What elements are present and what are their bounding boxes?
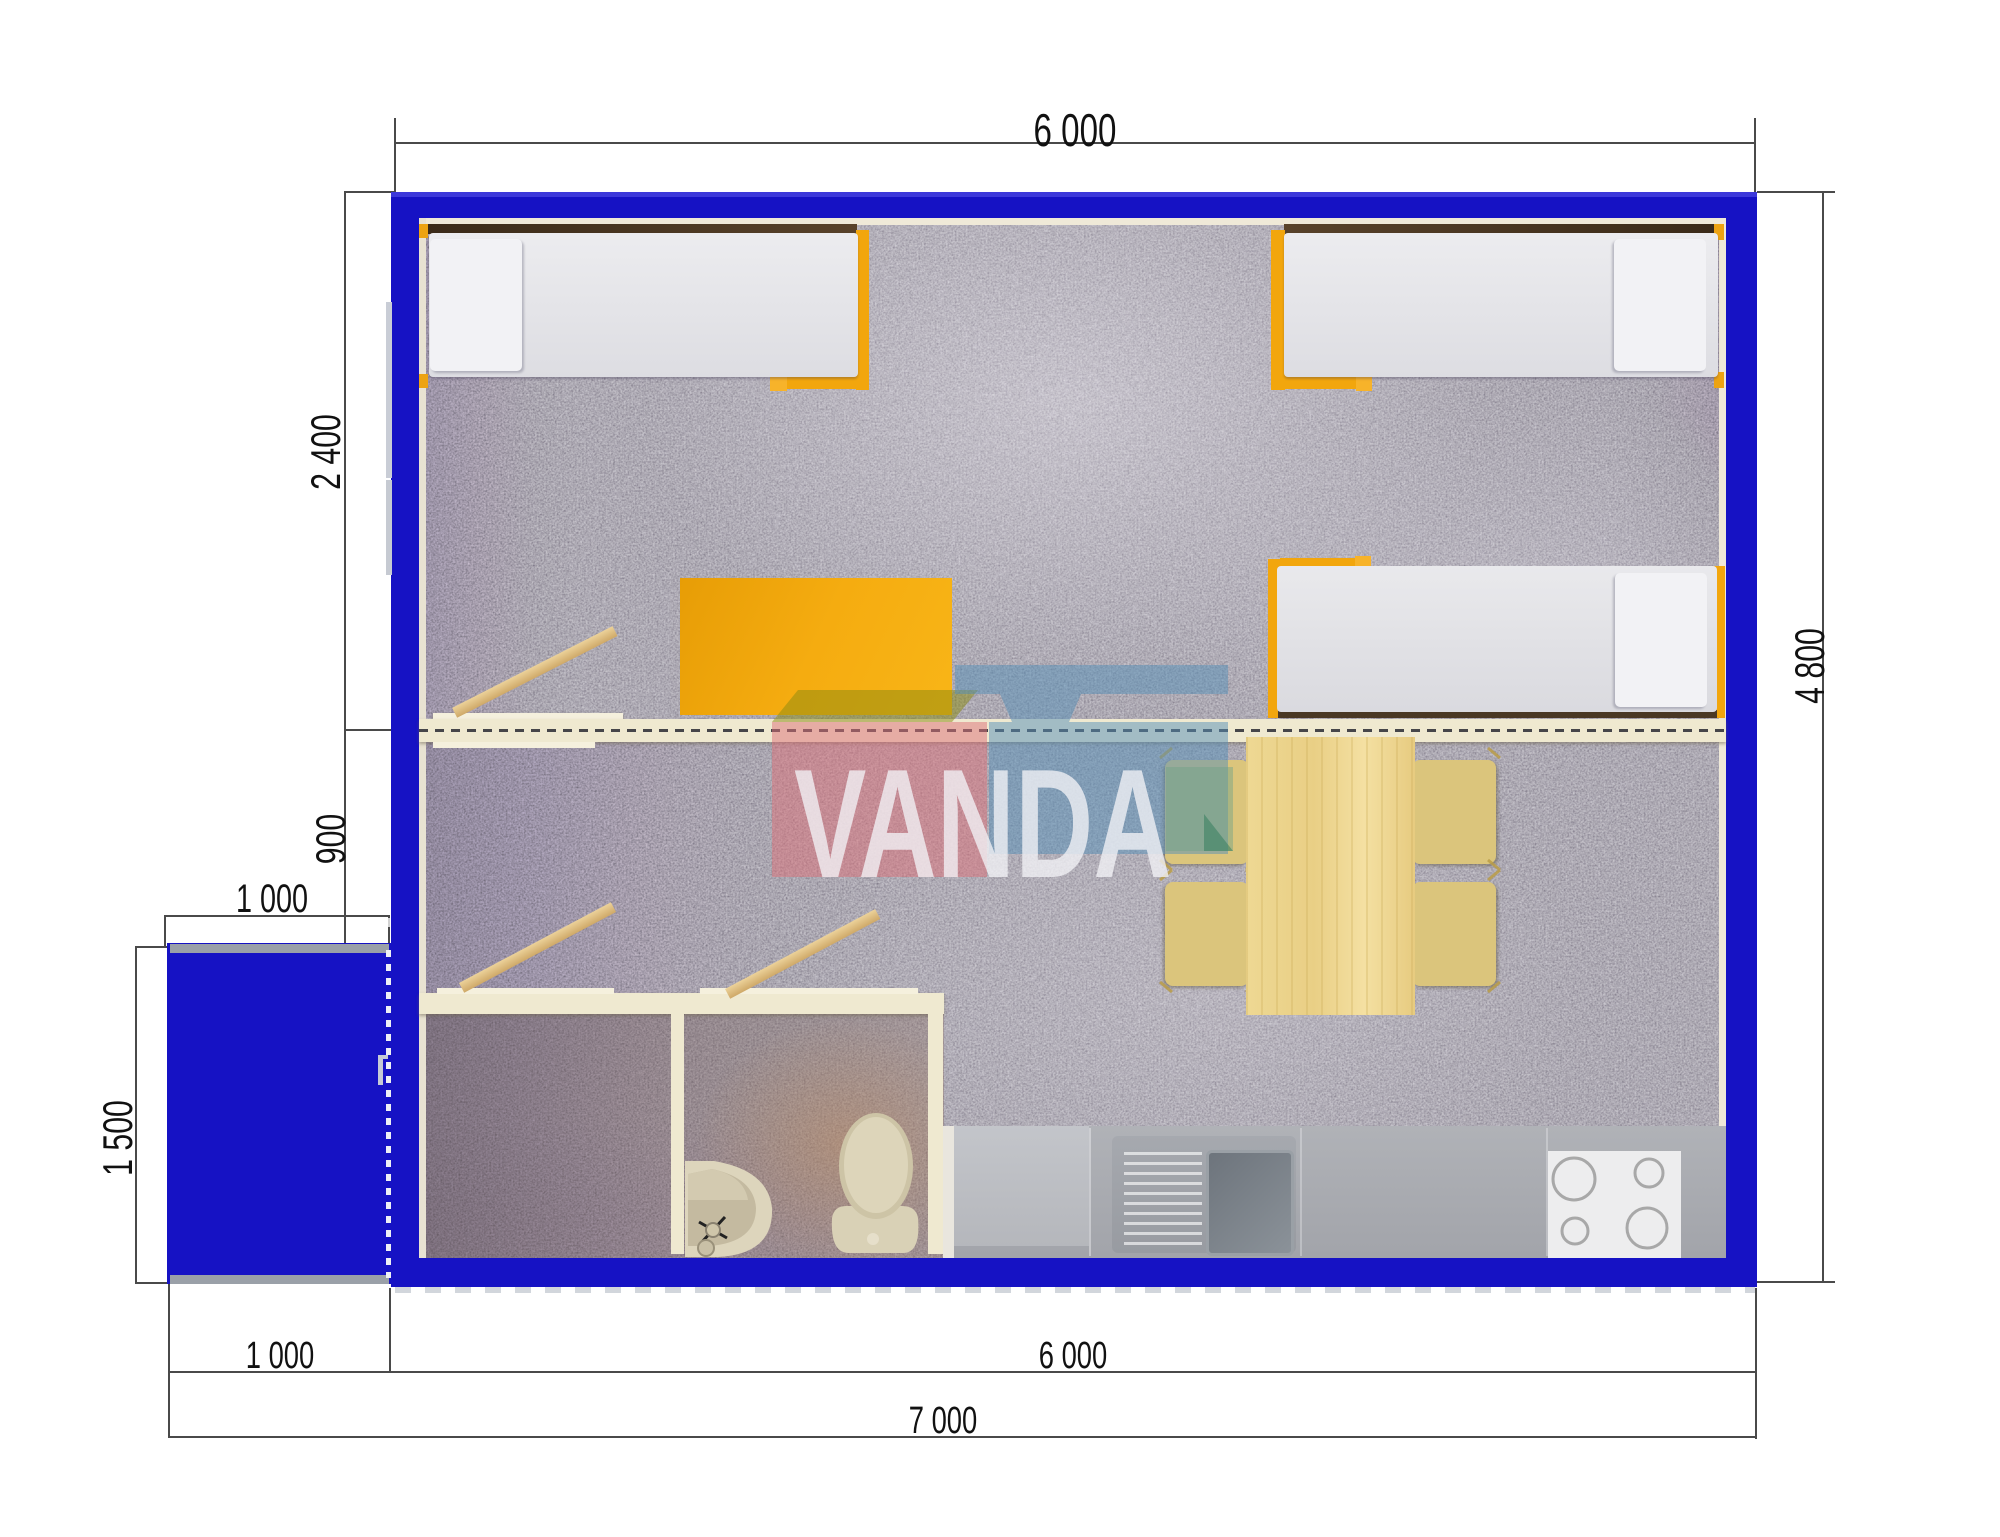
- svg-text:VANDA: VANDA: [794, 738, 1172, 885]
